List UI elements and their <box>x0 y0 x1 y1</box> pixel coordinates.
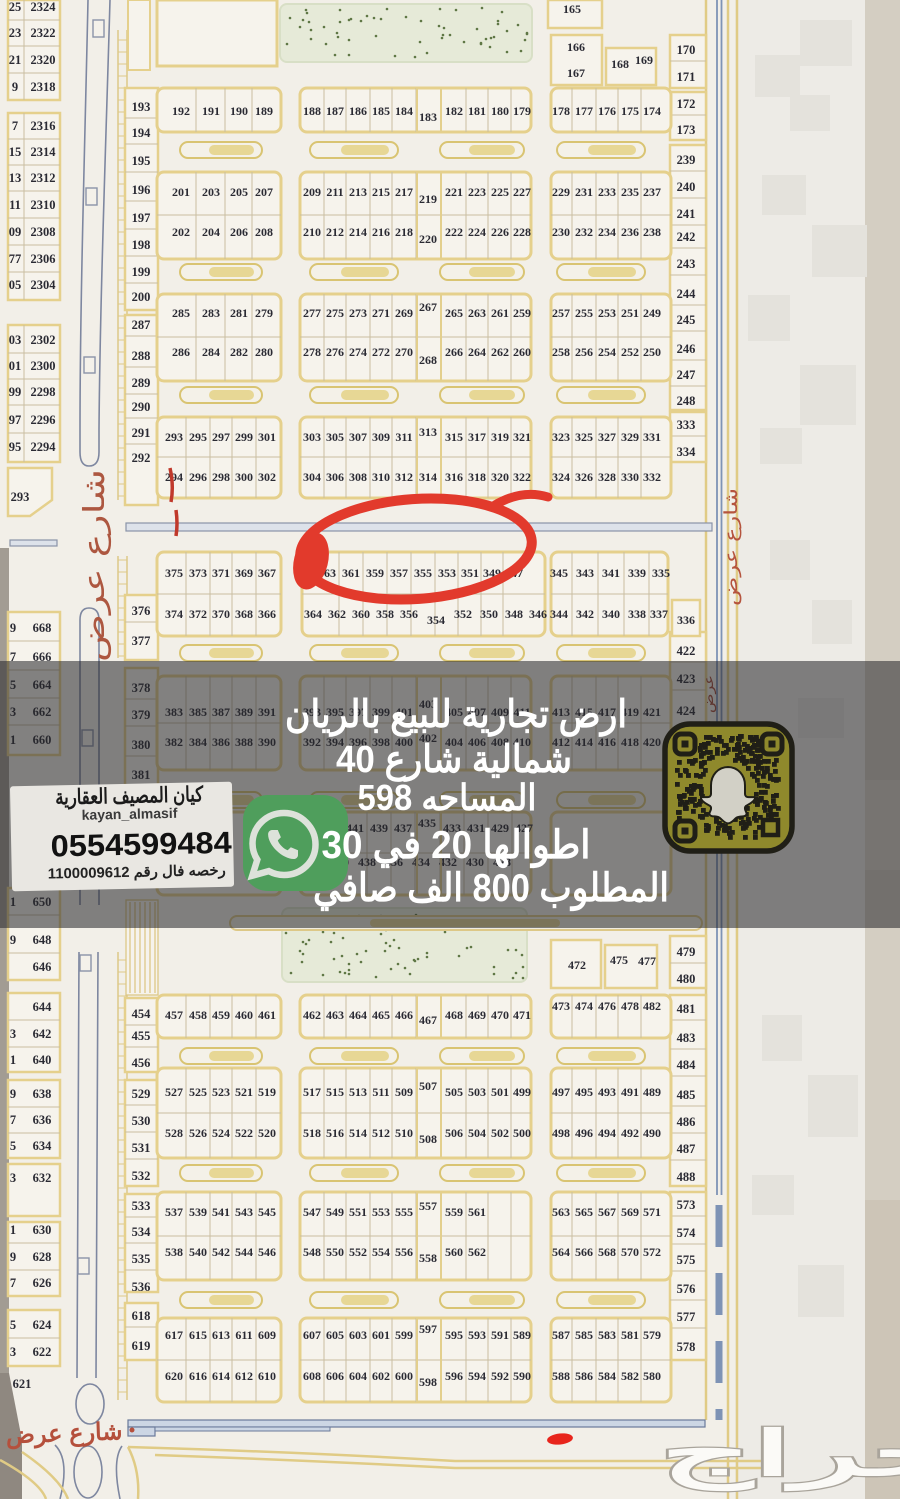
svg-text:473474476478482: 473474476478482 <box>552 999 661 1013</box>
svg-text:457458459460461: 457458459460461 <box>165 1008 276 1022</box>
svg-text:شارع عرض: شارع عرض <box>5 1418 122 1450</box>
svg-text:0554599484: 0554599484 <box>50 826 232 864</box>
svg-text:454455456: 454455456 <box>132 1007 152 1070</box>
svg-text:293: 293 <box>11 490 30 504</box>
svg-text:المساحه 598: المساحه 598 <box>358 777 537 818</box>
svg-text:ارض تجارية للبيع بالريان: ارض تجارية للبيع بالريان <box>285 694 627 737</box>
svg-text:اطوالها 20 في 30: اطوالها 20 في 30 <box>322 824 591 869</box>
svg-text:شمالية شارع 40: شمالية شارع 40 <box>336 739 572 782</box>
svg-text:178177176175174: 178177176175174 <box>552 104 661 118</box>
svg-text:شارع عرض: شارع عرض <box>721 488 742 606</box>
svg-text:حراج: حراج <box>660 1420 900 1492</box>
svg-text:kayan_almasif: kayan_almasif <box>82 805 178 823</box>
svg-text:المطلوب 800 الف صافي: المطلوب 800 الف صافي <box>313 867 669 912</box>
svg-text:336: 336 <box>677 613 695 627</box>
svg-text:621: 621 <box>13 1377 32 1391</box>
svg-text:شارع عرض: شارع عرض <box>79 469 112 662</box>
